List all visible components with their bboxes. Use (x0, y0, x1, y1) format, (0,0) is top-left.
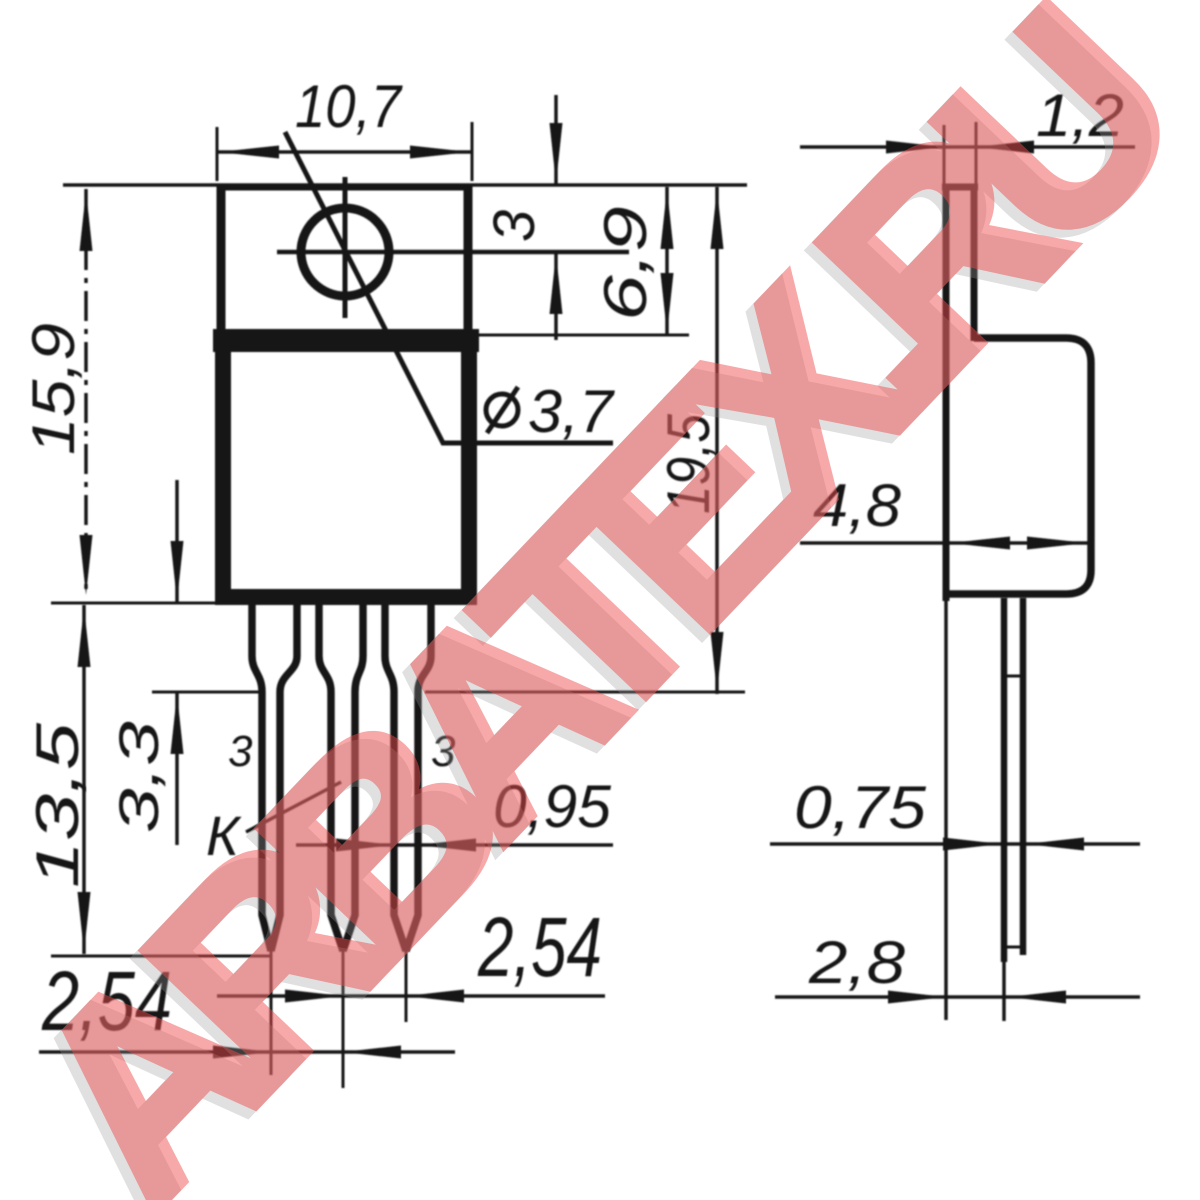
svg-text:6,9: 6,9 (592, 206, 659, 321)
svg-text:10,7: 10,7 (295, 73, 403, 140)
svg-text:3,3: 3,3 (107, 721, 170, 833)
svg-text:2,8: 2,8 (808, 929, 906, 996)
svg-text:13,5: 13,5 (24, 722, 91, 888)
svg-text:0,75: 0,75 (794, 774, 927, 841)
svg-text:3: 3 (482, 210, 547, 242)
svg-text:15,9: 15,9 (20, 323, 87, 455)
